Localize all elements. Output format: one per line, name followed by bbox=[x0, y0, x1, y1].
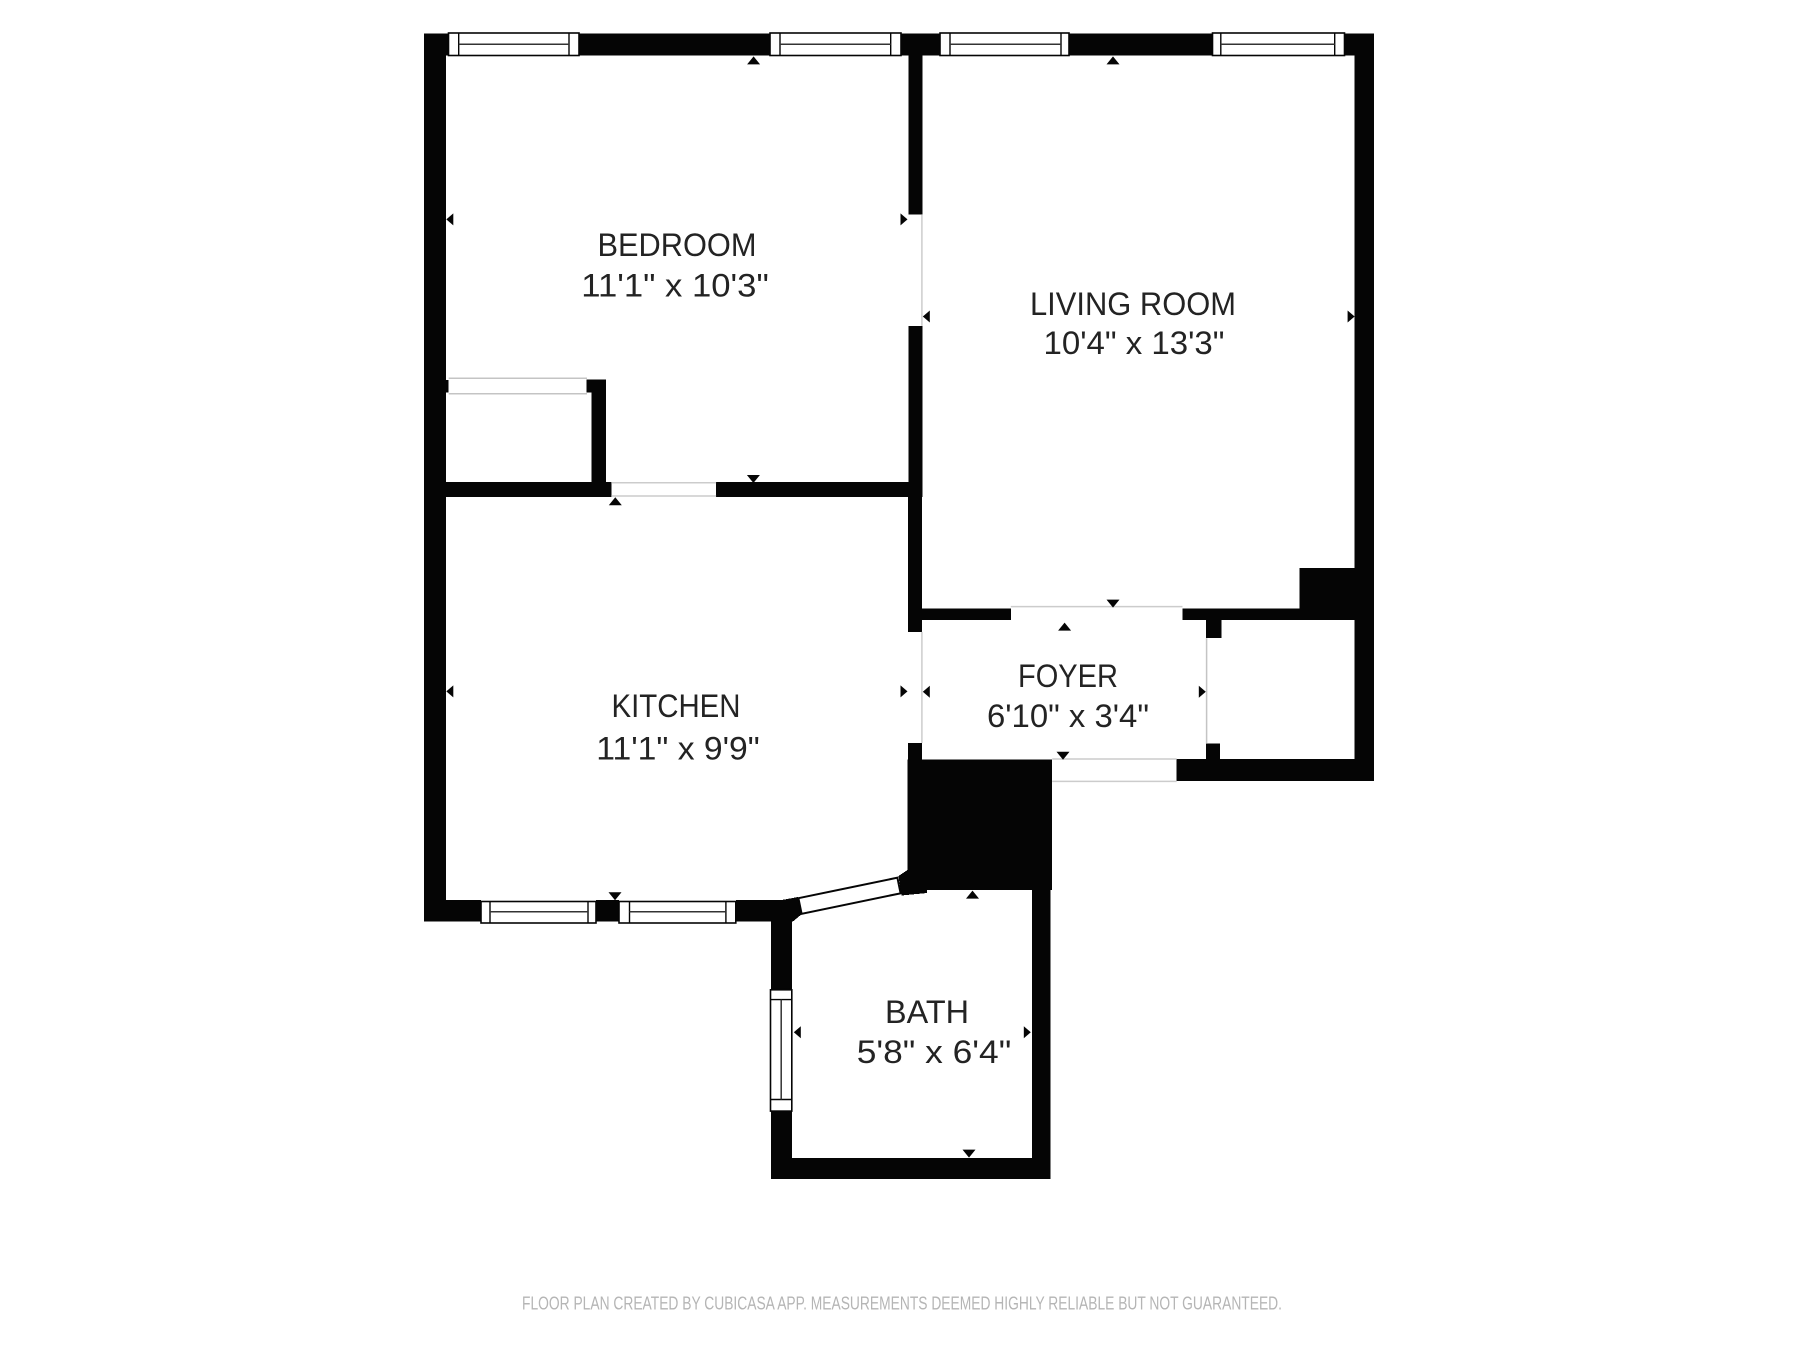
svg-text:11'1" x 9'9": 11'1" x 9'9" bbox=[596, 731, 760, 767]
svg-text:KITCHEN: KITCHEN bbox=[612, 688, 741, 724]
svg-text:BATH: BATH bbox=[885, 994, 969, 1030]
svg-text:LIVING ROOM: LIVING ROOM bbox=[1030, 286, 1236, 322]
svg-text:10'4" x 13'3": 10'4" x 13'3" bbox=[1044, 325, 1225, 361]
svg-text:11'1" x 10'3": 11'1" x 10'3" bbox=[581, 268, 769, 304]
svg-text:5'8" x 6'4": 5'8" x 6'4" bbox=[857, 1034, 1012, 1070]
svg-text:FLOOR PLAN CREATED BY CUBICASA: FLOOR PLAN CREATED BY CUBICASA APP. MEAS… bbox=[522, 1294, 1282, 1314]
svg-text:BEDROOM: BEDROOM bbox=[598, 227, 757, 263]
svg-text:FOYER: FOYER bbox=[1018, 658, 1118, 694]
svg-text:6'10" x 3'4": 6'10" x 3'4" bbox=[987, 698, 1149, 734]
